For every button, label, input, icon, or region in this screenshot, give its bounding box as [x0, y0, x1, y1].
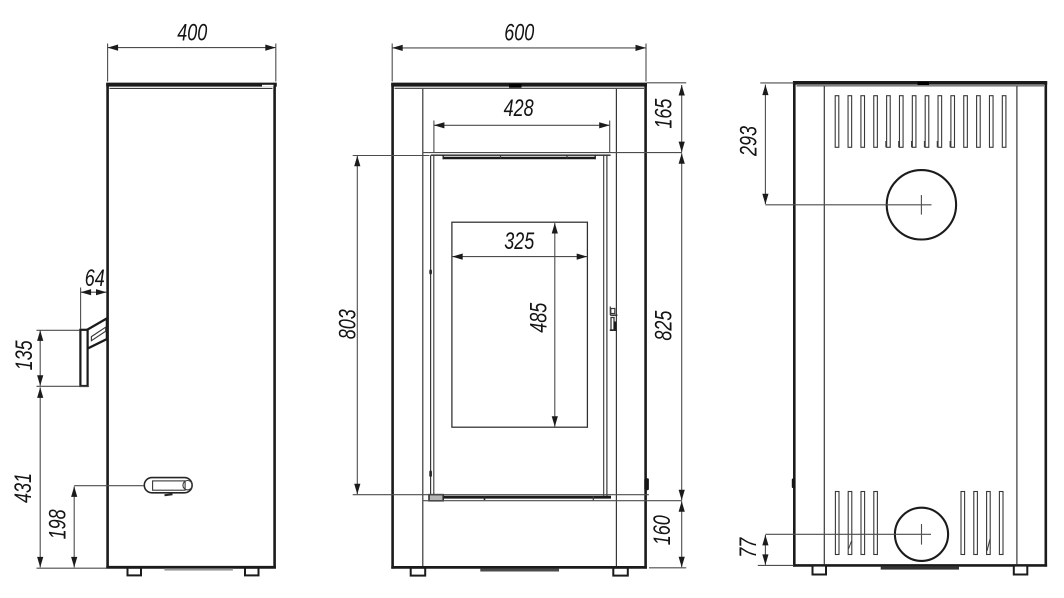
svg-text:400: 400	[177, 20, 207, 46]
svg-text:64: 64	[85, 266, 105, 292]
svg-text:825: 825	[651, 310, 677, 340]
svg-text:165: 165	[651, 98, 677, 128]
svg-text:325: 325	[504, 228, 534, 254]
svg-text:198: 198	[45, 509, 71, 539]
svg-text:293: 293	[736, 126, 762, 157]
svg-text:600: 600	[504, 20, 534, 46]
svg-text:803: 803	[335, 309, 361, 339]
svg-text:77: 77	[736, 537, 762, 558]
svg-text:431: 431	[11, 473, 37, 503]
svg-text:428: 428	[504, 96, 534, 122]
svg-text:160: 160	[649, 515, 675, 545]
svg-text:485: 485	[526, 303, 552, 333]
svg-text:135: 135	[12, 340, 38, 370]
